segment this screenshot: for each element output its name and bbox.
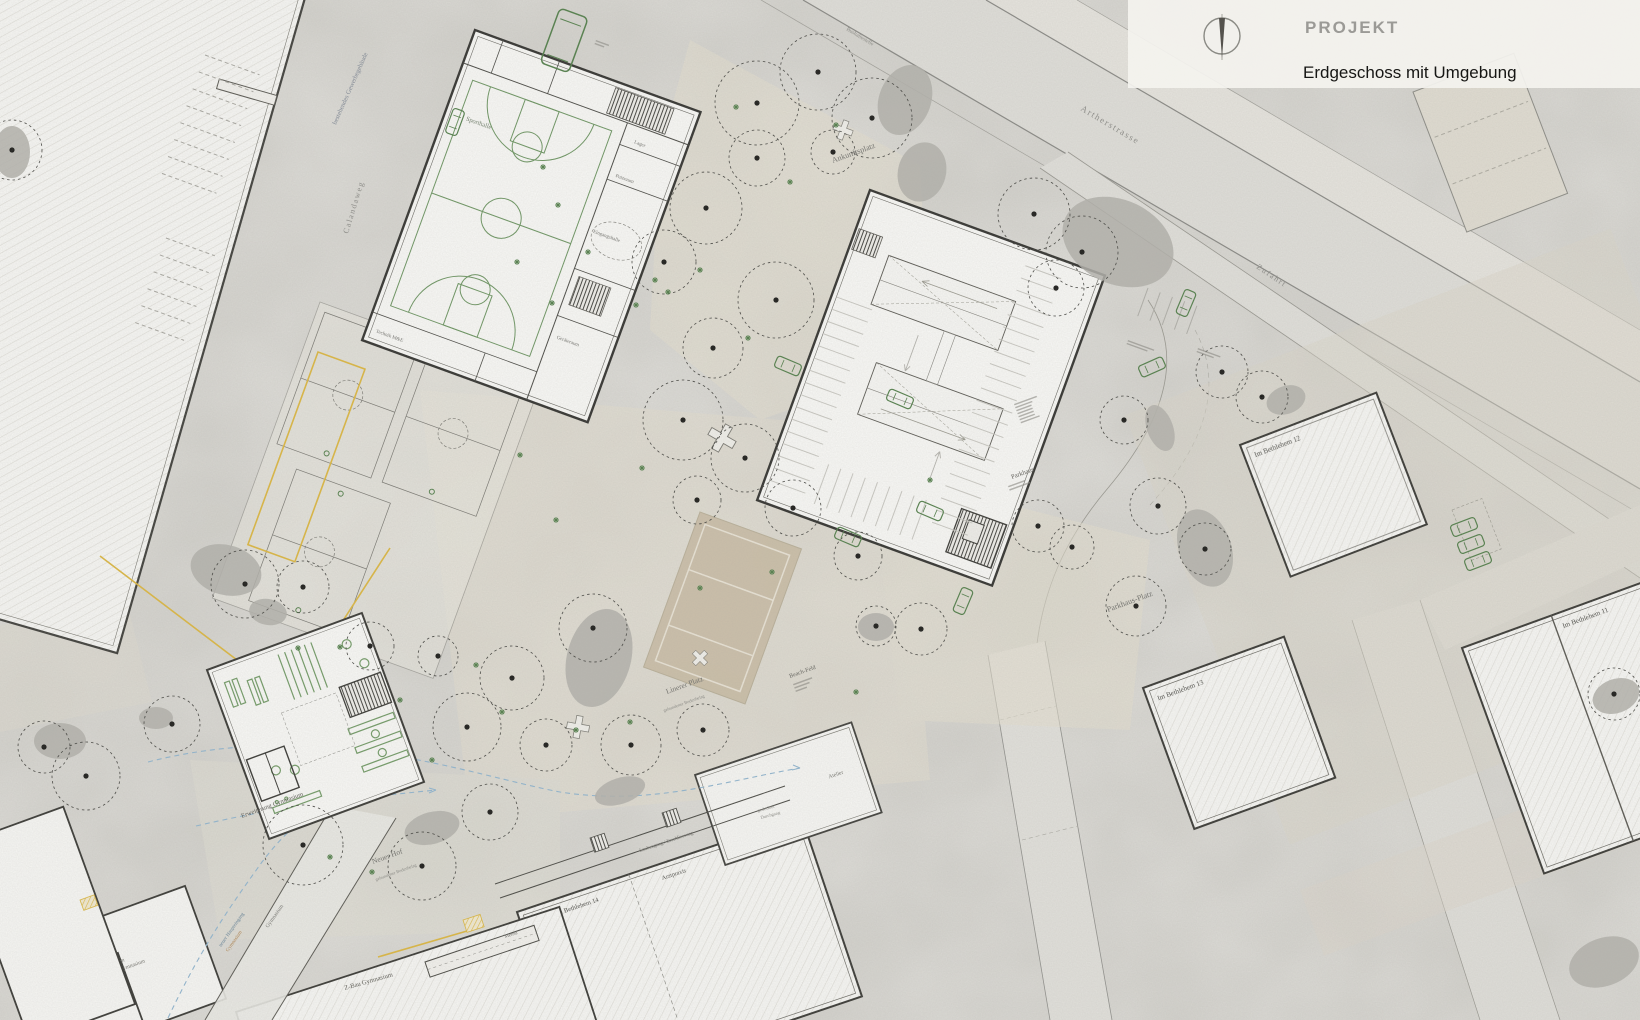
project-label: PROJEKT bbox=[1305, 18, 1399, 37]
site-plan-canvas: Im Bethlehem 12 Im Bethlehem 13 Im Bethl… bbox=[0, 0, 1640, 1020]
drawing-title: Erdgeschoss mit Umgebung bbox=[1303, 63, 1517, 82]
title-block: PROJEKT Erdgeschoss mit Umgebung bbox=[1128, 0, 1640, 88]
paper-grain bbox=[0, 0, 1640, 1020]
